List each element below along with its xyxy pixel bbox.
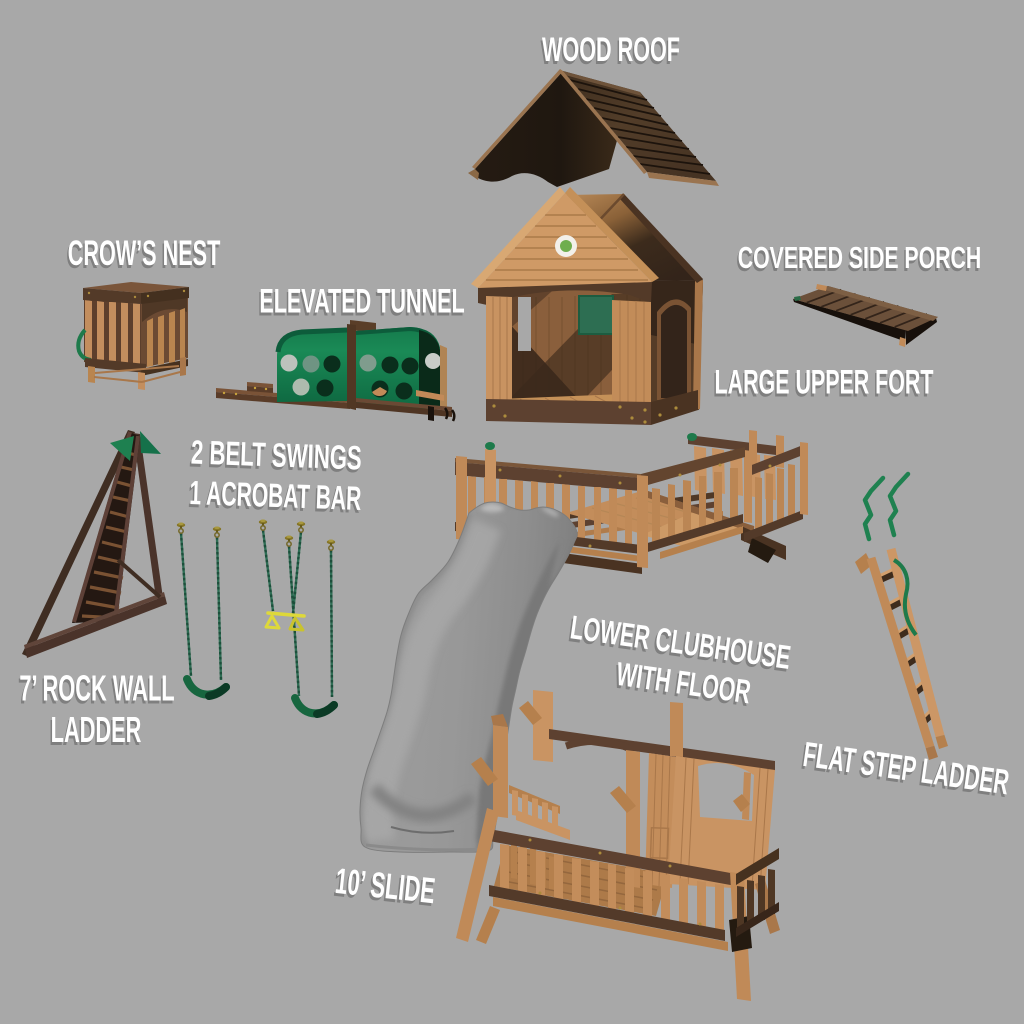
svg-text:COVERED SIDE PORCH: COVERED SIDE PORCH [738,240,982,275]
svg-text:WOOD ROOF: WOOD ROOF [542,31,680,69]
svg-text:7’ ROCK WALL: 7’ ROCK WALL [19,669,174,709]
svg-text:1 ACROBAT BAR: 1 ACROBAT BAR [189,474,362,517]
svg-text:LADDER: LADDER [51,710,142,750]
svg-text:2 BELT SWINGS: 2 BELT SWINGS [190,434,362,478]
svg-text:LARGE UPPER FORT: LARGE UPPER FORT [715,364,934,402]
svg-text:CROW’S NEST: CROW’S NEST [68,235,221,273]
svg-text:ELEVATED TUNNEL: ELEVATED TUNNEL [259,283,464,321]
